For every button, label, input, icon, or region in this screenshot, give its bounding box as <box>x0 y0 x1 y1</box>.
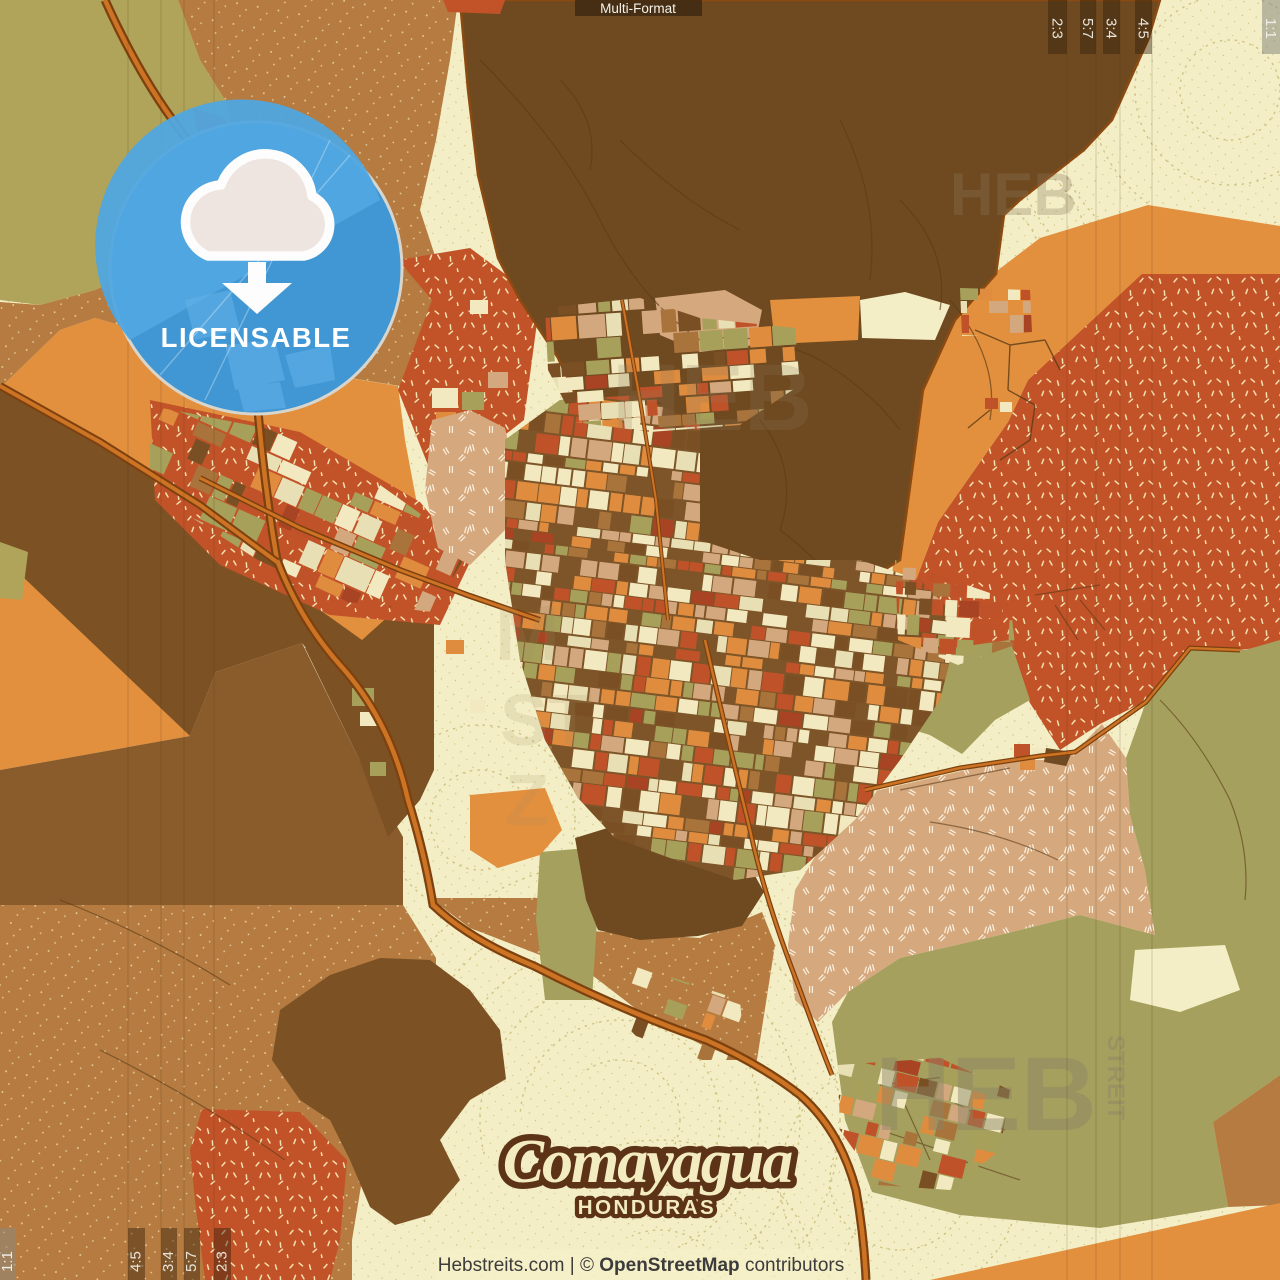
svg-text:4:5: 4:5 <box>1135 18 1152 39</box>
svg-text:4:5: 4:5 <box>127 1251 144 1272</box>
svg-text:3:4: 3:4 <box>160 1251 177 1272</box>
svg-text:1:1: 1:1 <box>0 1251 16 1272</box>
svg-text:Z: Z <box>505 761 549 841</box>
svg-text:STREIT: STREIT <box>1102 1035 1129 1121</box>
svg-text:M: M <box>495 589 560 677</box>
svg-text:HONDURAS: HONDURAS <box>578 1196 716 1219</box>
svg-text:5:7: 5:7 <box>183 1251 200 1272</box>
svg-text:HEB: HEB <box>875 1036 1097 1153</box>
svg-text:2:3: 2:3 <box>213 1251 230 1272</box>
svg-text:3:4: 3:4 <box>1103 18 1120 39</box>
svg-text:Comayagua: Comayagua <box>503 1128 793 1196</box>
svg-text:2:3: 2:3 <box>1049 18 1066 39</box>
svg-text:HEB: HEB <box>950 161 1077 228</box>
svg-text:Multi-Format: Multi-Format <box>600 1 676 16</box>
svg-text:HEB: HEB <box>612 345 813 451</box>
svg-text:ST: ST <box>500 681 592 761</box>
svg-text:5:7: 5:7 <box>1079 18 1096 39</box>
svg-text:1:1: 1:1 <box>1262 18 1279 39</box>
svg-text:Hebstreits.com | © OpenStreetM: Hebstreits.com | © OpenStreetMap contrib… <box>438 1255 844 1276</box>
svg-text:LICENSABLE: LICENSABLE <box>161 322 352 353</box>
